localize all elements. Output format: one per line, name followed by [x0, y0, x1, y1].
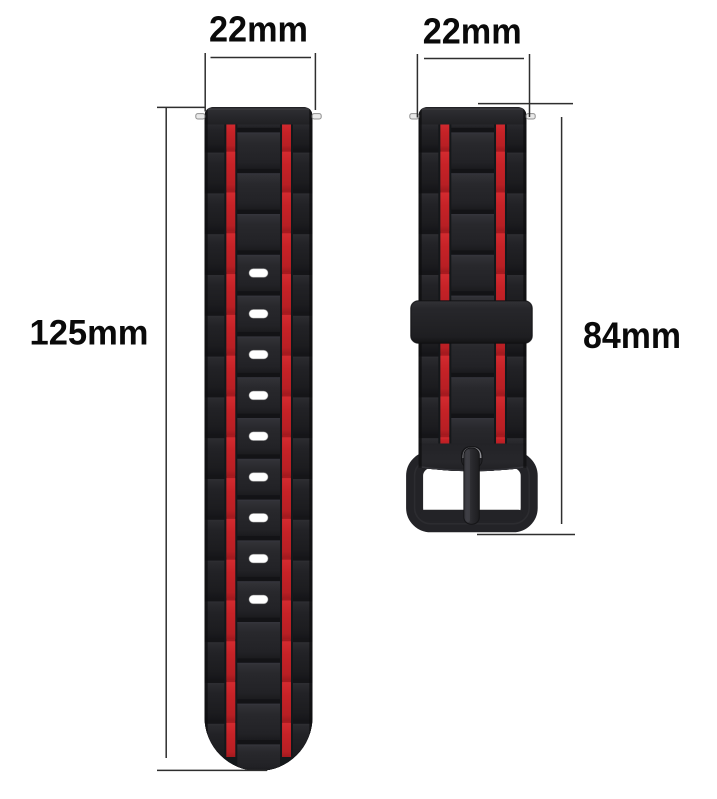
svg-text:84mm: 84mm — [583, 315, 681, 356]
svg-text:22mm: 22mm — [423, 10, 522, 51]
svg-text:22mm: 22mm — [209, 9, 308, 50]
svg-text:125mm: 125mm — [30, 312, 149, 352]
